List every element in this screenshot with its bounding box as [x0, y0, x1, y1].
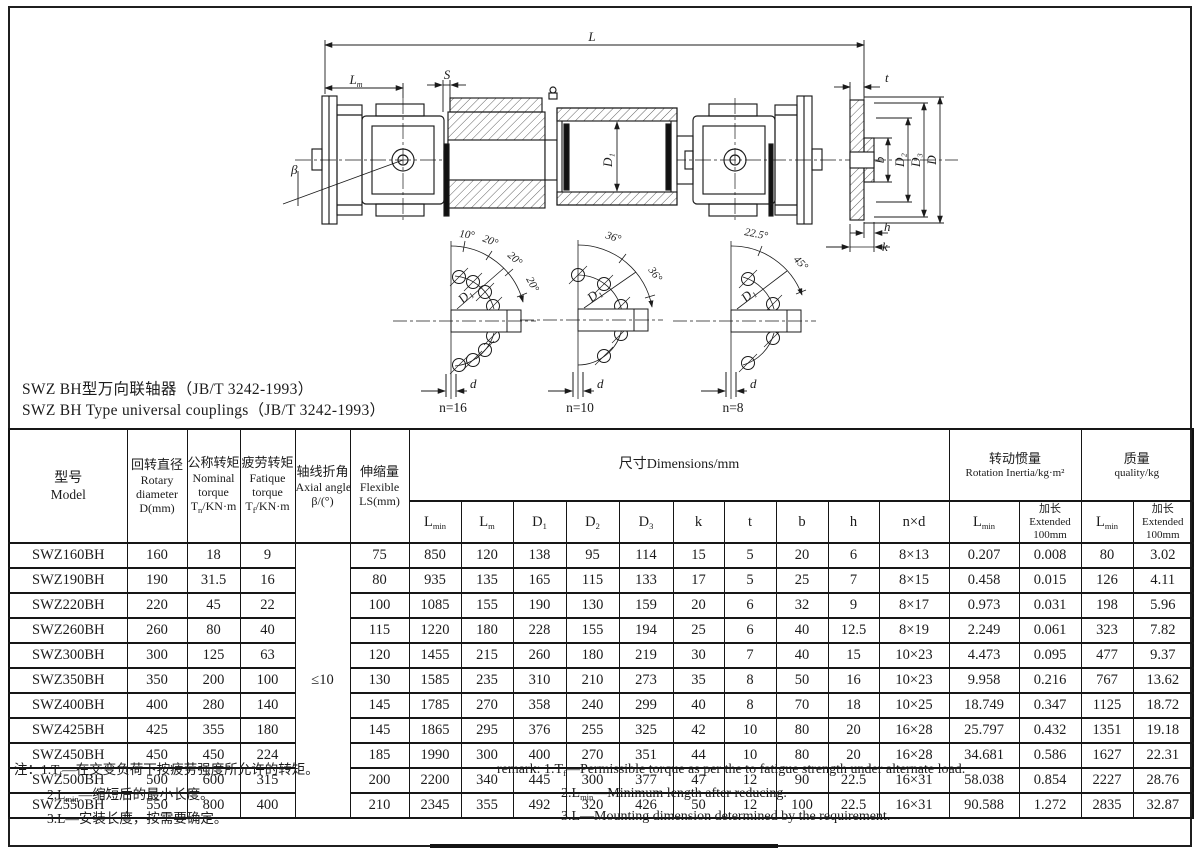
- table-cell: SWZ220BH: [9, 593, 127, 618]
- table-cell: 323: [1081, 618, 1133, 643]
- table-cell: 300: [127, 643, 187, 668]
- col-header-inertia-lmin: Lmin: [949, 501, 1019, 543]
- table-cell: 190: [127, 568, 187, 593]
- table-cell: 228: [513, 618, 566, 643]
- table-cell: 155: [566, 618, 619, 643]
- table-cell: 0.432: [1019, 718, 1081, 743]
- table-cell: 13.62: [1133, 668, 1193, 693]
- table-cell: 220: [127, 593, 187, 618]
- dim-label-t: t: [885, 70, 889, 85]
- table-cell: 8×17: [879, 593, 949, 618]
- hole-dia-label: d: [597, 376, 604, 391]
- col-group-dimensions: 尺寸Dimensions/mm: [409, 429, 949, 501]
- table-cell: 8×19: [879, 618, 949, 643]
- table-cell: 95: [566, 543, 619, 568]
- table-cell: 1220: [409, 618, 461, 643]
- table-cell: 0.347: [1019, 693, 1081, 718]
- table-cell: 1585: [409, 668, 461, 693]
- title-block-stub: [430, 844, 778, 848]
- table-cell: 18.749: [949, 693, 1019, 718]
- angle-label: 45°: [791, 254, 811, 274]
- table-cell: 50: [776, 668, 828, 693]
- table-cell: 7.82: [1133, 618, 1193, 643]
- coupling-technical-drawing: L Lm S t β D₁ b D₂ D₃ D h k: [0, 0, 1200, 430]
- dim-label-tube-diameter: D₁: [600, 153, 615, 168]
- note-line: 2.Lmin—缩短后的最小长度。: [14, 785, 319, 810]
- table-cell: 100: [240, 668, 295, 693]
- table-cell: 80: [350, 568, 409, 593]
- table-cell: 0.207: [949, 543, 1019, 568]
- table-cell: 20: [828, 718, 879, 743]
- table-cell: 18.72: [1133, 693, 1193, 718]
- col-group-quality: 质量 quality/kg: [1081, 429, 1193, 501]
- table-cell: 2345: [409, 793, 461, 818]
- dim-label-Lm: Lm: [348, 72, 362, 89]
- table-cell: SWZ400BH: [9, 693, 127, 718]
- table-cell: 219: [619, 643, 673, 668]
- table-cell: 210: [566, 668, 619, 693]
- table-cell: 1.272: [1019, 793, 1081, 818]
- table-row: SWZ190BH19031.51680935135165115133175257…: [9, 568, 1193, 593]
- table-cell: 70: [776, 693, 828, 718]
- table-cell: 40: [240, 618, 295, 643]
- table-cell: 235: [461, 668, 513, 693]
- note-line: 注：1.Tf—在交变负荷下按疲劳强度所允许的转矩。: [14, 760, 319, 785]
- col-header-d3: D3: [619, 501, 673, 543]
- angle-label: 10°: [459, 228, 476, 242]
- table-cell: 260: [127, 618, 187, 643]
- remark-line: 3.L—Mounting dimension determined by the…: [497, 807, 965, 827]
- table-cell: 8×15: [879, 568, 949, 593]
- table-cell: 1785: [409, 693, 461, 718]
- col-header-b: b: [776, 501, 828, 543]
- table-cell: 325: [619, 718, 673, 743]
- table-cell: SWZ350BH: [9, 668, 127, 693]
- table-cell: 200: [187, 668, 240, 693]
- table-cell: 22: [240, 593, 295, 618]
- bolt-count-label: n=10: [566, 400, 594, 415]
- coupling-assembly: [283, 87, 874, 224]
- dim-label-L: L: [587, 29, 595, 44]
- table-cell: 190: [513, 593, 566, 618]
- table-cell: 9.958: [949, 668, 1019, 693]
- col-header-lmin: Lmin: [409, 501, 461, 543]
- table-cell: 376: [513, 718, 566, 743]
- bolt-count-label: n=8: [722, 400, 743, 415]
- table-cell: 355: [187, 718, 240, 743]
- table-cell: 40: [776, 643, 828, 668]
- table-cell: 145: [350, 718, 409, 743]
- angle-label: 36°: [603, 229, 623, 246]
- table-cell: 115: [566, 568, 619, 593]
- table-cell: 180: [566, 643, 619, 668]
- table-cell: 350: [127, 668, 187, 693]
- table-cell: 215: [461, 643, 513, 668]
- table-cell: 40: [776, 618, 828, 643]
- table-cell: 280: [187, 693, 240, 718]
- table-cell: 0.031: [1019, 593, 1081, 618]
- table-cell: 8: [724, 668, 776, 693]
- table-cell: 114: [619, 543, 673, 568]
- table-cell: 10: [724, 718, 776, 743]
- table-cell: 25.797: [949, 718, 1019, 743]
- table-cell: 4.473: [949, 643, 1019, 668]
- table-cell: 180: [461, 618, 513, 643]
- table-cell: 0.008: [1019, 543, 1081, 568]
- table-row: SWZ160BH160189≤1075850120138951141552068…: [9, 543, 1193, 568]
- table-cell: 1125: [1081, 693, 1133, 718]
- table-cell: 273: [619, 668, 673, 693]
- dim-label-S: S: [444, 67, 451, 82]
- table-cell: 40: [673, 693, 724, 718]
- remarks-english: remark: 1.Tf—Permissible torque as per t…: [497, 760, 965, 827]
- table-cell: 25: [673, 618, 724, 643]
- table-cell: 10×25: [879, 693, 949, 718]
- table-cell: 135: [461, 568, 513, 593]
- title-chinese: SWZ BH型万向联轴器（JB/T 3242-1993）: [22, 379, 385, 400]
- table-cell: 180: [240, 718, 295, 743]
- bolt-count-label: n=16: [439, 400, 467, 415]
- product-title-block: SWZ BH型万向联轴器（JB/T 3242-1993） SWZ BH Type…: [22, 379, 385, 421]
- table-cell: 3.02: [1133, 543, 1193, 568]
- table-row: SWZ425BH42535518014518652953762553254210…: [9, 718, 1193, 743]
- table-cell: 270: [461, 693, 513, 718]
- table-cell: 2.249: [949, 618, 1019, 643]
- col-header-d2: D2: [566, 501, 619, 543]
- col-header-k: k: [673, 501, 724, 543]
- table-cell: 16×28: [879, 718, 949, 743]
- table-cell: 1627: [1081, 743, 1133, 768]
- table-cell: 15: [673, 543, 724, 568]
- bolt-circle-diagram-n10: 36° 36° D₁ d n=10: [520, 229, 665, 415]
- bolt-circle-label: D₁: [737, 284, 758, 305]
- table-cell: 310: [513, 668, 566, 693]
- table-cell: 126: [1081, 568, 1133, 593]
- table-cell: 31.5: [187, 568, 240, 593]
- table-cell: 10×23: [879, 643, 949, 668]
- table-cell: SWZ260BH: [9, 618, 127, 643]
- table-cell: 5: [724, 568, 776, 593]
- notes-chinese: 注：1.Tf—在交变负荷下按疲劳强度所允许的转矩。 2.Lmin—缩短后的最小长…: [14, 760, 319, 829]
- table-cell: 0.015: [1019, 568, 1081, 593]
- table-cell: 25: [776, 568, 828, 593]
- table-cell: 5.96: [1133, 593, 1193, 618]
- table-cell: 160: [127, 543, 187, 568]
- table-cell: 140: [240, 693, 295, 718]
- dim-label-b: b: [872, 156, 887, 163]
- bolt-circle-label: D₁: [583, 284, 604, 305]
- remark-line: 2.Lmin—Minimum length after reducing.: [497, 784, 965, 808]
- table-cell: 45: [187, 593, 240, 618]
- table-cell: 100: [350, 593, 409, 618]
- table-cell: 145: [350, 693, 409, 718]
- table-cell: 767: [1081, 668, 1133, 693]
- note-line: 3.L—安装长度，按需要确定。: [14, 809, 319, 829]
- table-cell: 0.095: [1019, 643, 1081, 668]
- bolt-circle-diagram-n8: 22.5° 45° D₁ d n=8: [673, 226, 816, 415]
- table-cell: 1351: [1081, 718, 1133, 743]
- table-cell: 5: [724, 543, 776, 568]
- table-cell: 42: [673, 718, 724, 743]
- table-cell: 1455: [409, 643, 461, 668]
- angle-label: 20°: [481, 233, 500, 250]
- table-cell: SWZ300BH: [9, 643, 127, 668]
- col-header-nxd: n×d: [879, 501, 949, 543]
- dim-label-k: k: [882, 239, 888, 254]
- table-cell: 240: [566, 693, 619, 718]
- table-cell: 15: [828, 643, 879, 668]
- table-cell: 20: [776, 543, 828, 568]
- table-cell: 165: [513, 568, 566, 593]
- dim-label-D: D: [924, 155, 939, 166]
- col-header-model: 型号 Model: [9, 429, 127, 543]
- table-cell: 2227: [1081, 768, 1133, 793]
- table-cell: 1085: [409, 593, 461, 618]
- table-cell: 18: [187, 543, 240, 568]
- angle-label: 22.5°: [743, 226, 769, 242]
- table-cell: 17: [673, 568, 724, 593]
- table-cell: 295: [461, 718, 513, 743]
- table-cell: 125: [187, 643, 240, 668]
- table-cell: 6: [724, 618, 776, 643]
- table-cell: 0.061: [1019, 618, 1081, 643]
- datasheet-page: L Lm S t β D₁ b D₂ D₃ D h k: [0, 0, 1200, 853]
- table-cell: 0.854: [1019, 768, 1081, 793]
- table-cell: 299: [619, 693, 673, 718]
- hole-dia-label: d: [470, 376, 477, 391]
- col-header-lm: Lm: [461, 501, 513, 543]
- table-row: SWZ220BH22045221001085155190130159206329…: [9, 593, 1193, 618]
- title-english: SWZ BH Type universal couplings（JB/T 324…: [22, 400, 385, 421]
- col-header-h: h: [828, 501, 879, 543]
- table-cell: 6: [828, 543, 879, 568]
- angle-label: 20°: [523, 275, 541, 295]
- table-cell: 120: [461, 543, 513, 568]
- dim-label-h: h: [884, 219, 891, 234]
- col-header-quality-lmin: Lmin: [1081, 501, 1133, 543]
- table-cell: 1865: [409, 718, 461, 743]
- table-cell: 1990: [409, 743, 461, 768]
- table-cell: 63: [240, 643, 295, 668]
- table-cell: SWZ190BH: [9, 568, 127, 593]
- table-cell: 80: [187, 618, 240, 643]
- table-cell: 400: [127, 693, 187, 718]
- hole-dia-label: d: [750, 376, 757, 391]
- col-header-quality-extended: 加长 Extended 100mm: [1133, 501, 1193, 543]
- dim-label-beta: β: [290, 162, 298, 177]
- table-cell: 198: [1081, 593, 1133, 618]
- table-cell: 155: [461, 593, 513, 618]
- table-cell: 7: [724, 643, 776, 668]
- col-header-inertia-extended: 加长 Extended 100mm: [1019, 501, 1081, 543]
- table-row: SWZ350BH35020010013015852353102102733585…: [9, 668, 1193, 693]
- table-cell: 2835: [1081, 793, 1133, 818]
- col-header-flexible: 伸缩量 Flexible LS(mm): [350, 429, 409, 543]
- bolt-circle-diagram-n16: 10° 20° 20° 20° D₁ d n=16: [393, 228, 541, 415]
- dim-label-D3: D₃: [908, 153, 923, 168]
- table-cell: 425: [127, 718, 187, 743]
- table-cell: 22.31: [1133, 743, 1193, 768]
- table-cell: 28.76: [1133, 768, 1193, 793]
- col-group-rotation-inertia: 转动惯量 Rotation Inertia/kg·m²: [949, 429, 1081, 501]
- table-cell: 0.216: [1019, 668, 1081, 693]
- table-cell: 9: [240, 543, 295, 568]
- table-cell: 75: [350, 543, 409, 568]
- table-cell: 16: [828, 668, 879, 693]
- table-cell: 6: [724, 593, 776, 618]
- table-cell: 80: [776, 718, 828, 743]
- table-cell: 8×13: [879, 543, 949, 568]
- table-cell: 10×23: [879, 668, 949, 693]
- table-cell: 19.18: [1133, 718, 1193, 743]
- table-cell: 477: [1081, 643, 1133, 668]
- table-cell: 260: [513, 643, 566, 668]
- table-cell: 850: [409, 543, 461, 568]
- table-cell: 18: [828, 693, 879, 718]
- table-cell: SWZ425BH: [9, 718, 127, 743]
- table-cell: 9.37: [1133, 643, 1193, 668]
- col-header-fatigue-torque: 疲劳转矩 Fatique torque Tf/KN·m: [240, 429, 295, 543]
- table-cell: 185: [350, 743, 409, 768]
- table-cell: SWZ160BH: [9, 543, 127, 568]
- angle-label: 36°: [645, 264, 665, 285]
- col-header-d1: D1: [513, 501, 566, 543]
- table-cell: 0.458: [949, 568, 1019, 593]
- table-cell: 32: [776, 593, 828, 618]
- table-cell: 32.87: [1133, 793, 1193, 818]
- table-cell: 4.11: [1133, 568, 1193, 593]
- table-cell: 935: [409, 568, 461, 593]
- table-cell: 30: [673, 643, 724, 668]
- table-cell: 115: [350, 618, 409, 643]
- col-header-t: t: [724, 501, 776, 543]
- table-row: SWZ260BH26080401151220180228155194256401…: [9, 618, 1193, 643]
- table-cell: 194: [619, 618, 673, 643]
- table-cell: 130: [350, 668, 409, 693]
- table-cell: 130: [566, 593, 619, 618]
- table-cell: 358: [513, 693, 566, 718]
- table-cell: 120: [350, 643, 409, 668]
- table-cell: 9: [828, 593, 879, 618]
- dim-label-D2: D₂: [892, 153, 907, 168]
- table-cell: 20: [673, 593, 724, 618]
- table-cell: 159: [619, 593, 673, 618]
- table-cell: 210: [350, 793, 409, 818]
- table-cell: 16: [240, 568, 295, 593]
- table-cell: 12.5: [828, 618, 879, 643]
- col-header-nominal-torque: 公称转矩 Nominal torque Tn/KN·m: [187, 429, 240, 543]
- col-header-rotary-diameter: 回转直径 Rotary diameter D(mm): [127, 429, 187, 543]
- col-header-axial-angle: 轴线折角 Axial angle β/(°): [295, 429, 350, 543]
- table-cell: 2200: [409, 768, 461, 793]
- table-cell: 255: [566, 718, 619, 743]
- remark-line: remark: 1.Tf—Permissible torque as per t…: [497, 760, 965, 784]
- table-row: SWZ300BH30012563120145521526018021930740…: [9, 643, 1193, 668]
- table-cell: 8: [724, 693, 776, 718]
- table-cell: 200: [350, 768, 409, 793]
- table-cell: 0.586: [1019, 743, 1081, 768]
- table-cell: 133: [619, 568, 673, 593]
- table-cell: 138: [513, 543, 566, 568]
- table-cell: 80: [1081, 543, 1133, 568]
- table-cell: 7: [828, 568, 879, 593]
- angle-label: 20°: [505, 249, 525, 269]
- table-cell: 35: [673, 668, 724, 693]
- table-row: SWZ400BH40028014014517852703582402994087…: [9, 693, 1193, 718]
- table-cell: 0.973: [949, 593, 1019, 618]
